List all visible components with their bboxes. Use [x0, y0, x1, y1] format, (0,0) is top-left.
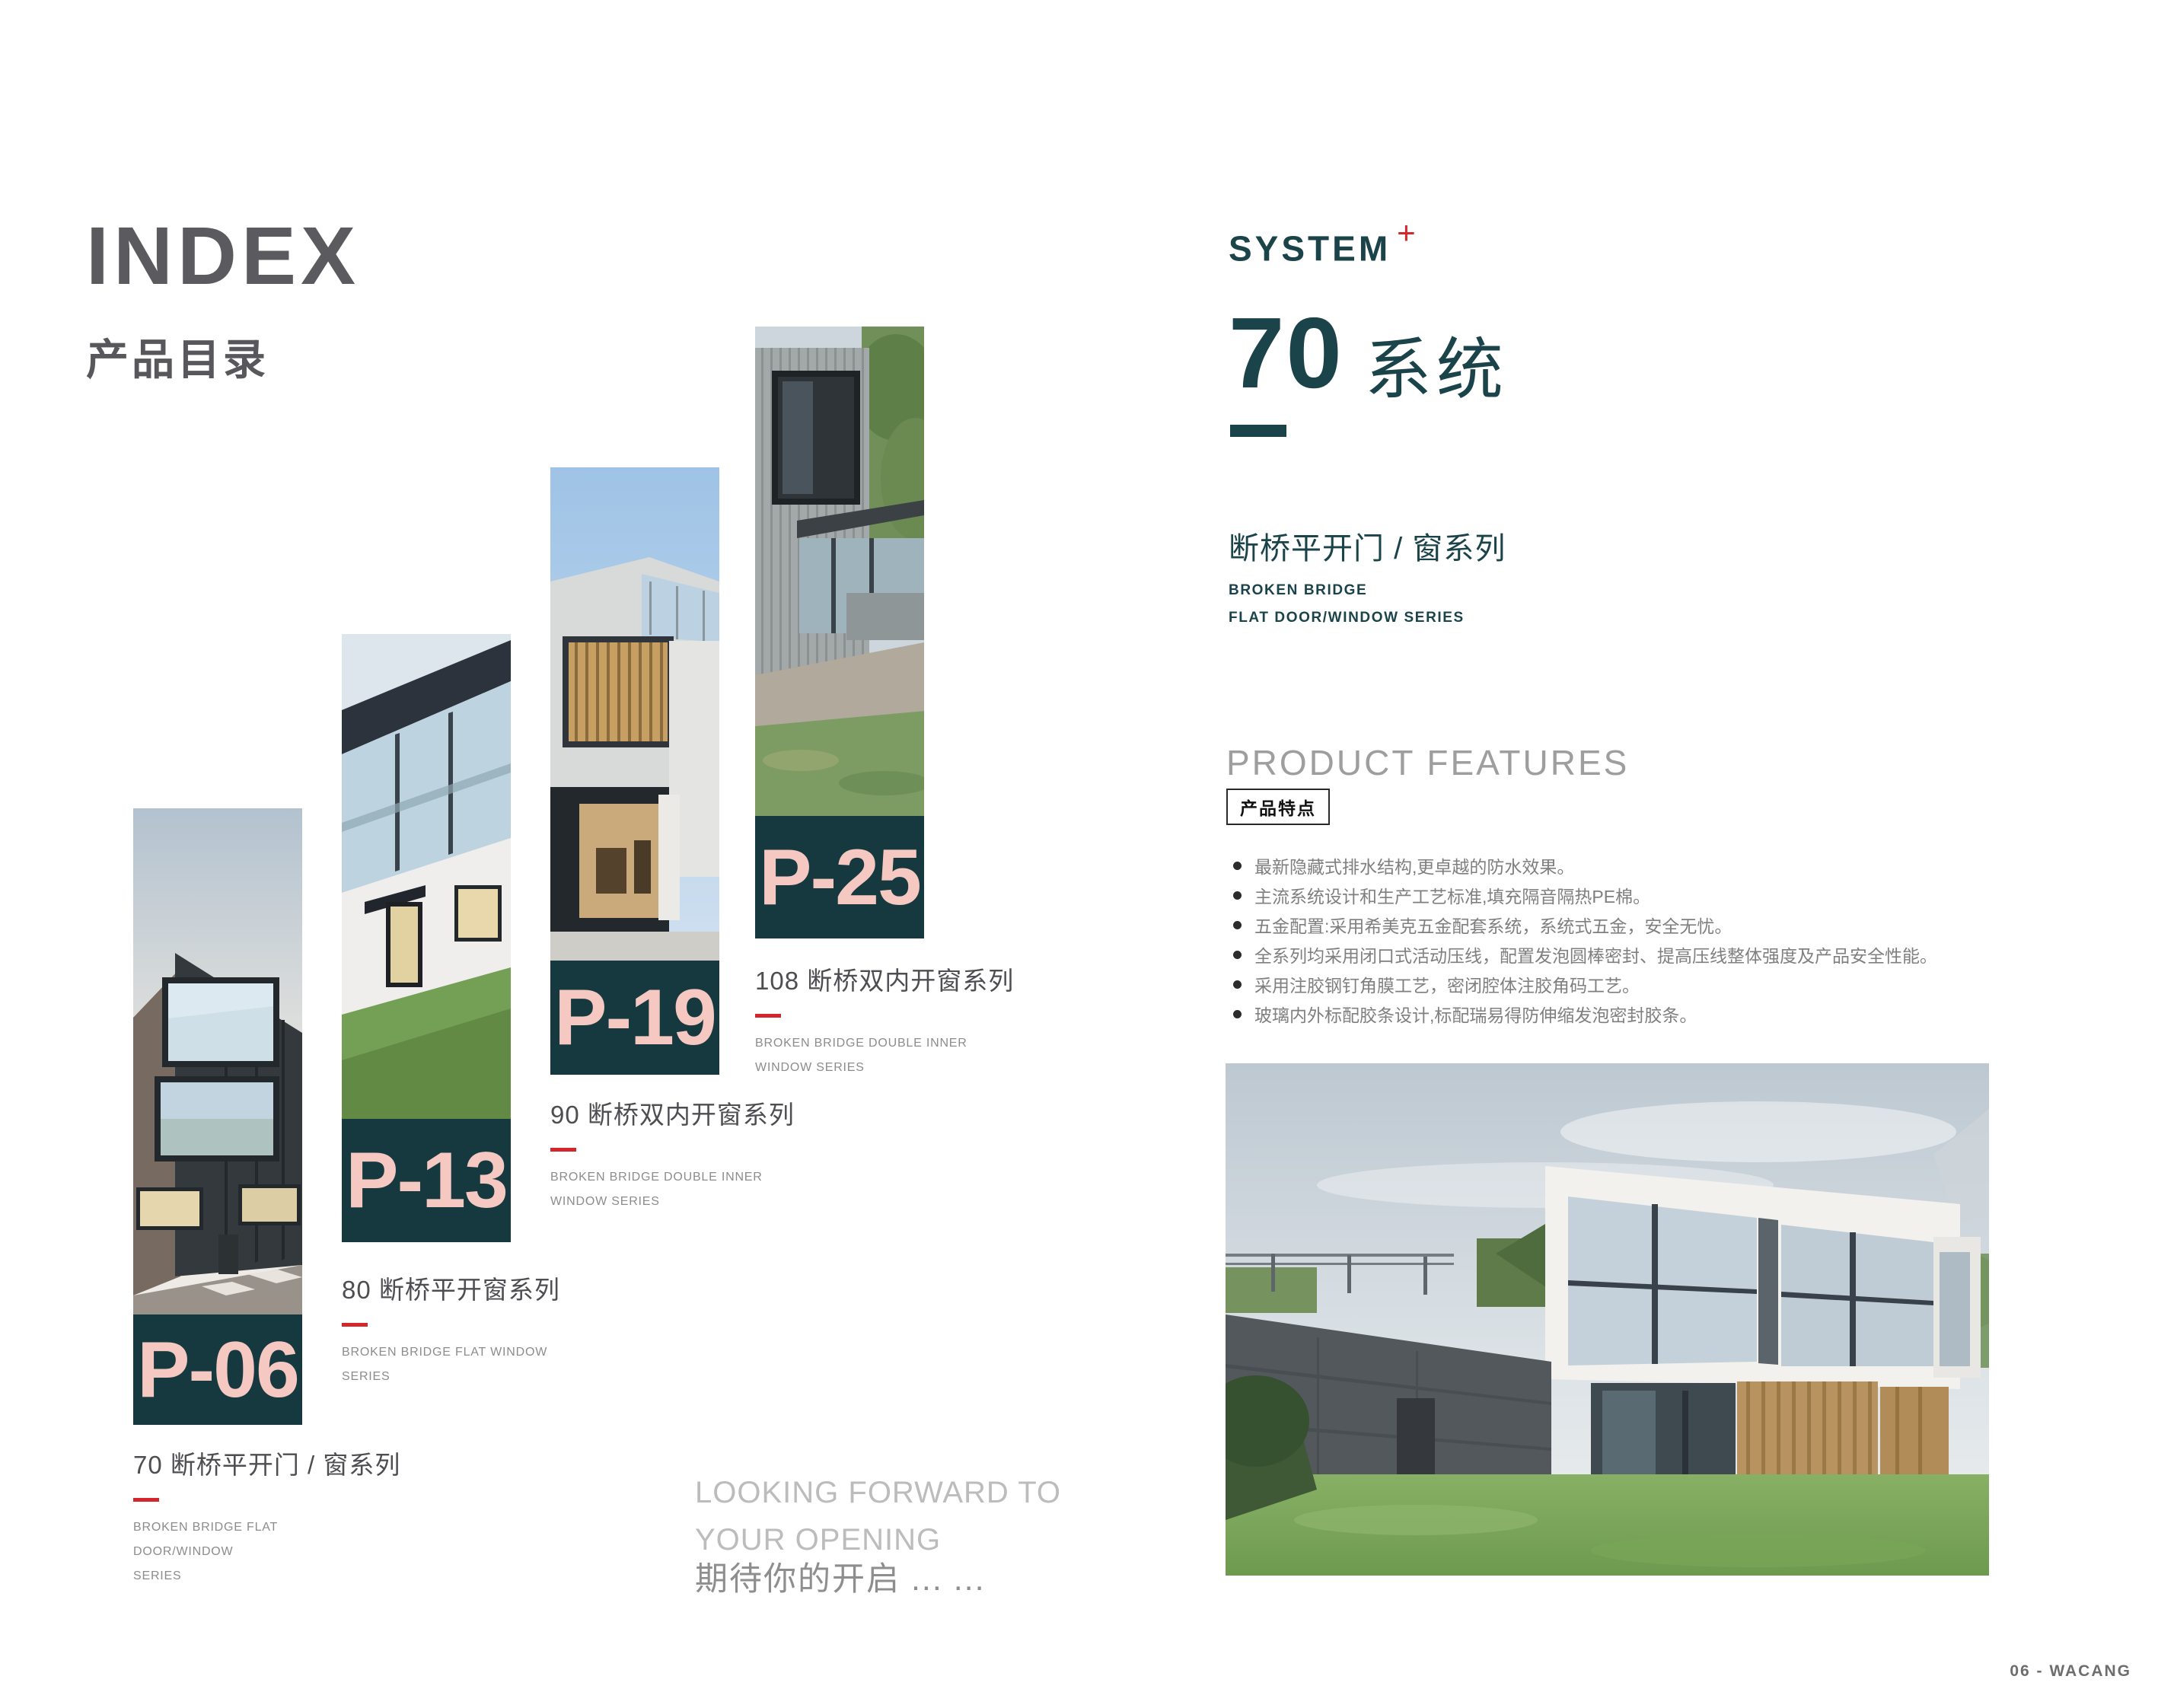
caption-title: 70 断桥平开门 / 窗系列 [133, 1445, 362, 1481]
index-item-p06: P-06 [133, 808, 302, 1425]
photo-white-house [342, 634, 511, 1119]
caption-title: 90 断桥双内开窗系列 [550, 1095, 779, 1131]
bullet-icon [1233, 1010, 1242, 1018]
system-number: 70 [1229, 303, 1344, 403]
features-list: 最新隐藏式排水结构,更卓越的防水效果。 主流系统设计和生产工艺标准,填充隔音隔热… [1229, 859, 1990, 1037]
caption-accent-dash [755, 1014, 781, 1018]
code-label: P-06 [137, 1330, 298, 1410]
bullet-icon [1233, 891, 1242, 900]
page-subtitle: 产品目录 [86, 339, 269, 381]
system-word: 系统 [1365, 336, 1508, 403]
page-number: 06 - WACANG [1895, 1662, 2131, 1681]
feature-item: 最新隐藏式排水结构,更卓越的防水效果。 [1229, 859, 1990, 876]
teal-dash [1230, 425, 1286, 437]
page-title: INDEX [86, 215, 360, 297]
feature-item: 全系列均采用闭口式活动压线，配置发泡圆棒密封、提高压线整体强度及产品安全性能。 [1229, 948, 1990, 965]
brand-logo: SYSTEM+ [1229, 219, 1413, 269]
bullet-icon [1233, 980, 1242, 989]
bullet-icon [1233, 921, 1242, 929]
feature-item: 五金配置:采用希美克五金配套系统，系统式五金，安全无忧。 [1229, 918, 1990, 935]
photo-concrete-house [550, 467, 719, 961]
system-title: 70 系统 [1229, 303, 1508, 403]
catalog-spread: INDEX 产品目录 [0, 0, 2158, 1708]
code-label: P-19 [554, 978, 716, 1057]
caption-p13: 80 断桥平开窗系列 BROKEN BRIDGE FLAT WINDOW SER… [342, 1270, 570, 1389]
photo-dark-building [133, 808, 302, 1314]
code-badge: P-06 [133, 1314, 302, 1425]
series-title-zh: 断桥平开门 / 窗系列 [1229, 524, 1506, 568]
caption-p25: 108 断桥双内开窗系列 BROKEN BRIDGE DOUBLE INNER … [755, 961, 983, 1080]
caption-title: 80 断桥平开窗系列 [342, 1270, 570, 1306]
caption-accent-dash [133, 1498, 159, 1502]
code-badge: P-25 [755, 816, 924, 938]
bullet-icon [1233, 951, 1242, 959]
code-label: P-13 [346, 1141, 507, 1220]
caption-english: BROKEN BRIDGE FLAT WINDOW SERIES [342, 1340, 570, 1389]
outro-chinese: 期待你的开启 ... ... [695, 1553, 986, 1600]
caption-title: 108 断桥双内开窗系列 [755, 961, 983, 997]
code-badge: P-19 [550, 961, 719, 1075]
caption-english: BROKEN BRIDGE FLAT DOOR/WINDOW SERIES [133, 1515, 362, 1589]
photo-timber-building [755, 327, 924, 816]
feature-item: 玻璃内外标配胶条设计,标配瑞易得防伸缩发泡密封胶条。 [1229, 1007, 1990, 1024]
bullet-icon [1233, 862, 1242, 870]
caption-p19: 90 断桥双内开窗系列 BROKEN BRIDGE DOUBLE INNER W… [550, 1095, 779, 1214]
index-item-p19: P-19 [550, 467, 719, 1076]
caption-english: BROKEN BRIDGE DOUBLE INNER WINDOW SERIES [550, 1165, 779, 1214]
features-heading: PRODUCT FEATURES [1226, 742, 1629, 783]
photo-modern-villa [1226, 1063, 1989, 1576]
feature-item: 主流系统设计和生产工艺标准,填充隔音隔热PE棉。 [1229, 888, 1990, 906]
index-item-p25: P-25 [755, 327, 924, 943]
code-label: P-25 [759, 838, 920, 917]
feature-item: 采用注胶钢钉角膜工艺，密闭腔体注胶角码工艺。 [1229, 977, 1990, 995]
features-badge: 产品特点 [1226, 789, 1330, 825]
code-badge: P-13 [342, 1119, 511, 1242]
outro-english: LOOKING FORWARD TO YOUR OPENING [695, 1469, 1061, 1563]
caption-english: BROKEN BRIDGE DOUBLE INNER WINDOW SERIES [755, 1031, 983, 1080]
caption-p06: 70 断桥平开门 / 窗系列 BROKEN BRIDGE FLAT DOOR/W… [133, 1445, 362, 1589]
caption-accent-dash [550, 1148, 576, 1152]
series-title-en: BROKEN BRIDGE FLAT DOOR/WINDOW SERIES [1229, 577, 1465, 632]
index-item-p13: P-13 [342, 634, 511, 1243]
brand-plus-icon: + [1397, 215, 1419, 250]
caption-accent-dash [342, 1323, 368, 1327]
